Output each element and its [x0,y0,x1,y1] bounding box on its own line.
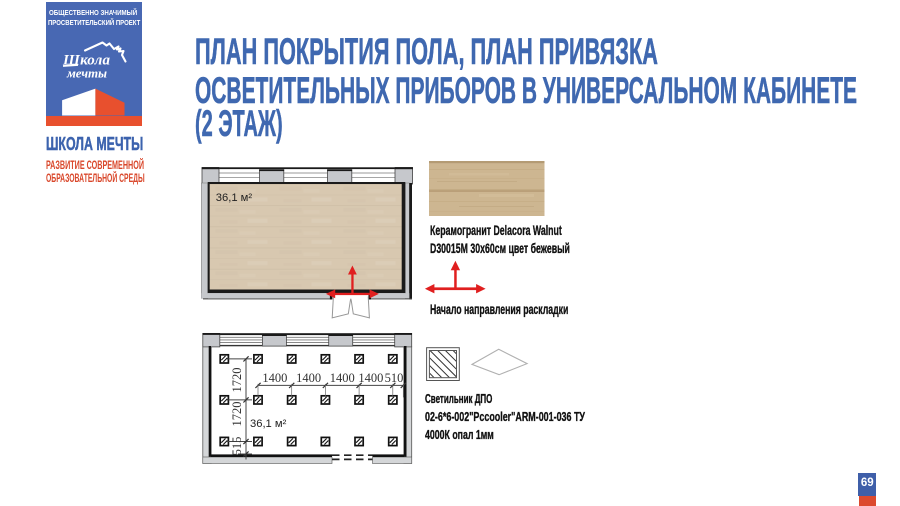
svg-text:1720: 1720 [230,402,244,427]
svg-text:36,1 м²: 36,1 м² [216,192,253,204]
svg-text:36,1 м²: 36,1 м² [250,418,287,430]
svg-text:1400: 1400 [330,371,355,385]
svg-text:1400: 1400 [296,371,321,385]
svg-text:515: 515 [230,437,244,456]
svg-text:510: 510 [385,371,404,385]
svg-text:1400: 1400 [262,371,287,385]
svg-text:1720: 1720 [230,368,244,393]
svg-text:1400: 1400 [358,371,383,385]
